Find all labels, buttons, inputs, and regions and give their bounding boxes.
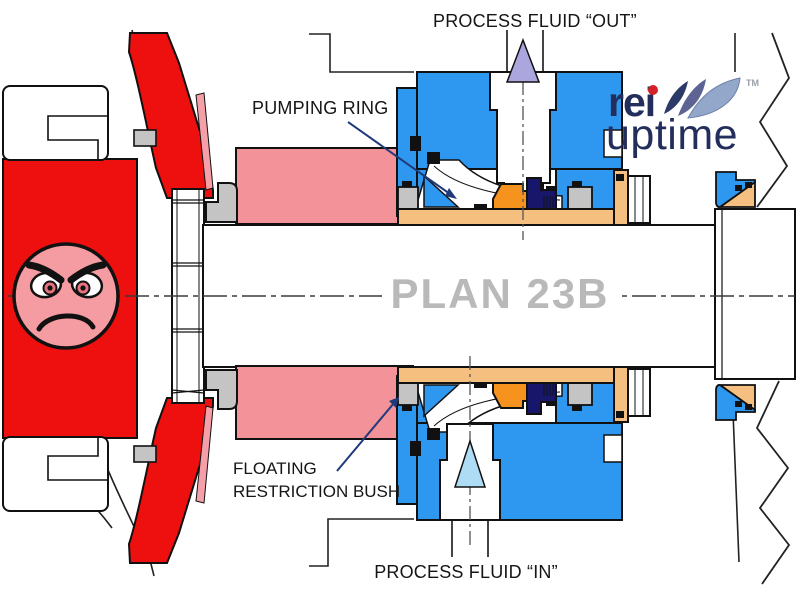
seal-face-stationary-top [527, 178, 556, 212]
process-fluid-out-label: PROCESS FLUID “OUT” [433, 11, 633, 32]
seal-face-rotating-top [493, 184, 527, 212]
rei-uptime-logo: rei TM uptime [598, 70, 778, 165]
seal-gland-bottom [397, 367, 650, 520]
seal-face-rotating-bottom [493, 380, 527, 408]
bearing-lip-seal-top [716, 172, 755, 207]
logo-red-dot-icon [648, 85, 658, 95]
plan-23b-watermark: PLAN 23B [380, 270, 620, 318]
restriction-bush-top [398, 187, 418, 209]
floating-restriction-bush-label: FLOATING RESTRICTION BUSH [233, 457, 400, 503]
restriction-bush-bottom [398, 383, 418, 405]
bearing-lip-seal-bottom [716, 385, 755, 420]
seal-face-stationary-bottom [527, 380, 556, 414]
logo-trademark: TM [746, 78, 759, 88]
logo-brand-bottom: uptime [606, 114, 738, 157]
process-fluid-in-label: PROCESS FLUID “IN” [366, 562, 566, 583]
diagram-canvas: PROCESS FLUID “OUT” PUMPING RING FLOATIN… [0, 0, 800, 600]
shaft-sleeve-bottom [398, 367, 648, 383]
pumping-ring-label: PUMPING RING [252, 98, 388, 119]
flow-out-arrow-icon [507, 40, 539, 82]
angry-face-cartoon [14, 244, 118, 348]
floating-restriction-bush-label-line2: RESTRICTION BUSH [233, 480, 400, 503]
floating-restriction-bush-label-line1: FLOATING [233, 457, 400, 480]
